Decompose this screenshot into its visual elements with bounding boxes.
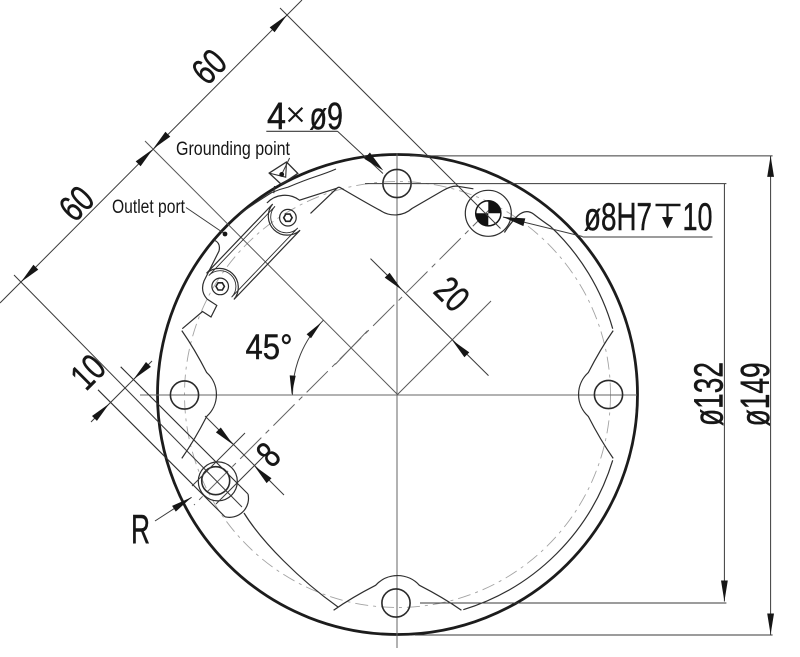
svg-text:R: R xyxy=(131,506,150,552)
svg-text:10: 10 xyxy=(683,196,713,239)
svg-text:ø132: ø132 xyxy=(686,362,732,426)
svg-text:Outlet port: Outlet port xyxy=(112,197,186,218)
svg-text:45°: 45° xyxy=(246,328,293,367)
svg-text:ø149: ø149 xyxy=(732,362,778,426)
svg-text:Grounding point: Grounding point xyxy=(176,139,291,160)
svg-text:ø8H7: ø8H7 xyxy=(584,196,652,239)
